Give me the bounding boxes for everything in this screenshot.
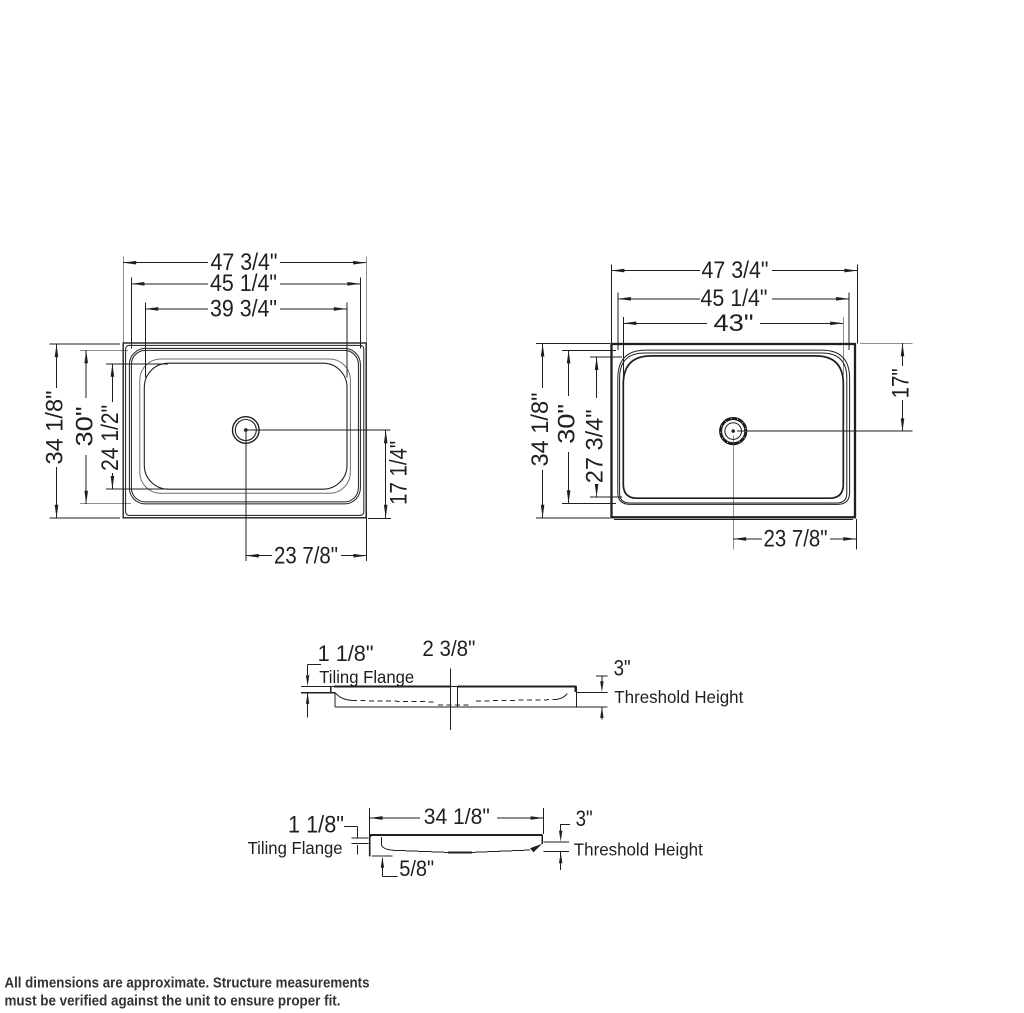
svg-text:45 1/4": 45 1/4" [701, 285, 768, 312]
svg-text:1 1/8": 1 1/8" [288, 811, 344, 838]
svg-text:23 7/8": 23 7/8" [274, 542, 338, 569]
svg-text:17": 17" [887, 368, 914, 398]
svg-text:Threshold Height: Threshold Height [614, 687, 743, 707]
svg-text:must be verified against the u: must be verified against the unit to ens… [5, 993, 341, 1010]
svg-text:45 1/4": 45 1/4" [210, 270, 277, 297]
svg-text:Threshold Height: Threshold Height [574, 840, 703, 860]
svg-text:43": 43" [714, 310, 754, 337]
svg-text:3": 3" [614, 655, 631, 680]
svg-text:34 1/8": 34 1/8" [424, 804, 490, 829]
svg-text:30": 30" [72, 407, 99, 447]
svg-text:23 7/8": 23 7/8" [764, 525, 828, 552]
svg-text:17 1/4": 17 1/4" [385, 441, 412, 505]
svg-text:24 1/2": 24 1/2" [97, 405, 124, 471]
svg-text:5/8": 5/8" [399, 856, 434, 881]
svg-text:3": 3" [576, 806, 593, 831]
svg-text:34 1/8": 34 1/8" [41, 391, 68, 465]
svg-text:All dimensions are approximate: All dimensions are approximate. Structur… [5, 975, 370, 992]
svg-text:47 3/4": 47 3/4" [702, 257, 769, 284]
svg-text:34 1/8": 34 1/8" [527, 393, 554, 467]
svg-text:2 3/8": 2 3/8" [422, 636, 475, 661]
svg-text:30": 30" [553, 404, 580, 444]
svg-text:1 1/8": 1 1/8" [318, 641, 374, 666]
svg-text:Tiling Flange: Tiling Flange [319, 667, 414, 687]
svg-text:Tiling Flange: Tiling Flange [248, 838, 343, 858]
svg-text:39 3/4": 39 3/4" [210, 295, 277, 322]
svg-text:27 3/4": 27 3/4" [581, 409, 608, 483]
